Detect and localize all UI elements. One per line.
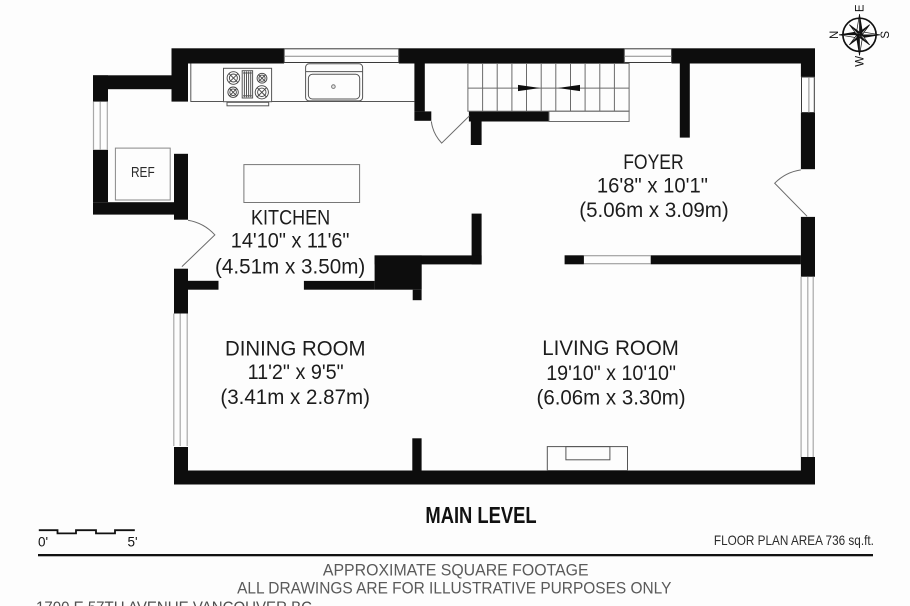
svg-text:11'2" x 9'5": 11'2" x 9'5": [248, 360, 344, 384]
svg-text:FOYER: FOYER: [623, 150, 684, 174]
svg-text:ALL DRAWINGS ARE FOR ILLUSTRAT: ALL DRAWINGS ARE FOR ILLUSTRATIVE PURPOS…: [237, 579, 671, 598]
svg-text:19'10" x 10'10": 19'10" x 10'10": [546, 361, 676, 385]
svg-text:W: W: [854, 56, 866, 67]
svg-text:FLOOR PLAN AREA 736 sq.ft.: FLOOR PLAN AREA 736 sq.ft.: [714, 533, 874, 548]
svg-text:0': 0': [38, 535, 48, 550]
svg-text:16'8" x 10'1": 16'8" x 10'1": [597, 173, 708, 197]
svg-text:S: S: [880, 31, 892, 39]
svg-text:DINING ROOM: DINING ROOM: [225, 336, 366, 360]
svg-text:REF: REF: [131, 164, 155, 181]
svg-text:(3.41m x 2.87m): (3.41m x 2.87m): [220, 385, 370, 409]
svg-text:(4.51m x 3.50m): (4.51m x 3.50m): [215, 255, 365, 279]
svg-text:(6.06m x 3.30m): (6.06m x 3.30m): [537, 386, 686, 410]
svg-text:(5.06m x 3.09m): (5.06m x 3.09m): [579, 198, 728, 222]
svg-text:5': 5': [128, 535, 138, 550]
svg-text:KITCHEN: KITCHEN: [251, 206, 330, 230]
svg-text:APPROXIMATE SQUARE FOOTAGE: APPROXIMATE SQUARE FOOTAGE: [323, 561, 589, 580]
svg-text:LIVING ROOM: LIVING ROOM: [542, 336, 679, 360]
svg-text:N: N: [829, 31, 841, 39]
svg-text:E: E: [854, 4, 866, 12]
svg-text:14'10" x 11'6": 14'10" x 11'6": [231, 229, 350, 253]
svg-text:MAIN LEVEL: MAIN LEVEL: [425, 502, 536, 528]
svg-text:1700 E 57TH AVENUE VANCOUVER B: 1700 E 57TH AVENUE VANCOUVER BC: [36, 600, 312, 606]
